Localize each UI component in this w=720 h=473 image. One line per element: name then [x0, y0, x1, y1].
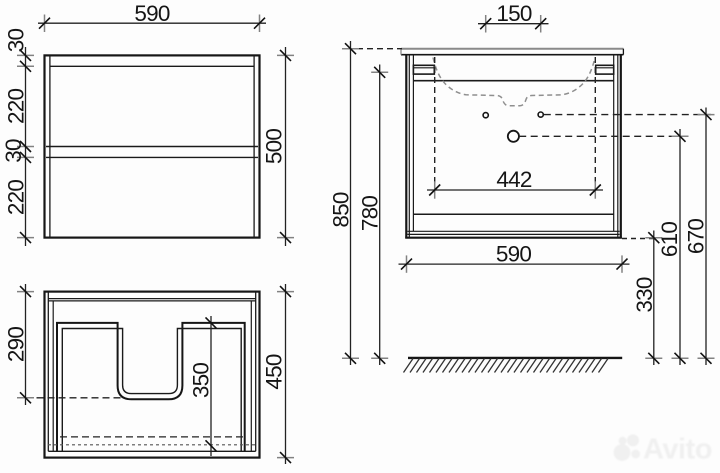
svg-text:670: 670: [683, 219, 708, 254]
svg-text:330: 330: [632, 277, 657, 312]
svg-text:150: 150: [496, 1, 531, 26]
svg-text:500: 500: [262, 129, 287, 164]
svg-text:590: 590: [134, 1, 169, 26]
svg-text:590: 590: [496, 242, 531, 267]
svg-text:220: 220: [4, 89, 29, 124]
svg-text:850: 850: [329, 192, 354, 227]
svg-text:780: 780: [358, 196, 383, 231]
svg-text:350: 350: [189, 363, 214, 398]
svg-text:290: 290: [4, 327, 29, 362]
svg-text:450: 450: [262, 354, 287, 389]
svg-text:220: 220: [4, 180, 29, 215]
svg-text:30: 30: [1, 139, 26, 163]
svg-text:Avito: Avito: [643, 434, 712, 466]
svg-text:30: 30: [4, 29, 29, 53]
svg-text:442: 442: [496, 167, 531, 192]
svg-text:610: 610: [657, 222, 682, 257]
